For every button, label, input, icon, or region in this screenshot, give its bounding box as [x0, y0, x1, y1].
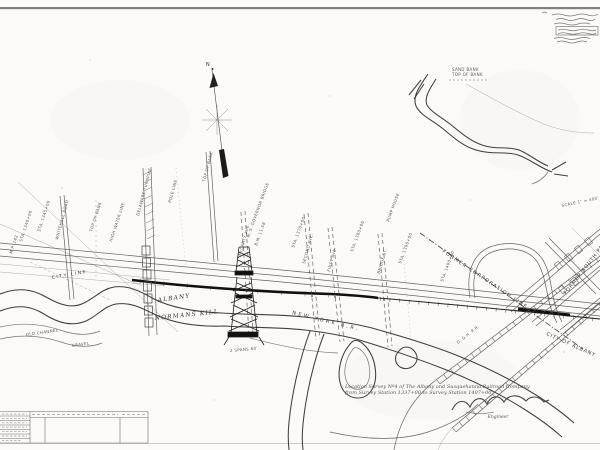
- map-drawing: N SAND BANK TOP OF BANK: [0, 0, 600, 450]
- micro-label: GRAVEL: [71, 341, 90, 348]
- albany-label: ALBANY: [156, 292, 191, 304]
- engineer-title: Engineer: [487, 414, 510, 420]
- survey-map-sheet: N SAND BANK TOP OF BANK: [0, 0, 600, 450]
- micro-label: POLE LINE: [167, 179, 178, 203]
- property-lines: [0, 182, 178, 332]
- paper-texture: [50, 59, 580, 420]
- micro-label: FIRST AVE.: [326, 247, 337, 272]
- micro-label: STA. 1380+00: [349, 220, 365, 253]
- micro-label: D. & H. R.R.: [456, 324, 481, 345]
- micro-label: SECOND AVE.: [301, 233, 314, 264]
- micro-label: BRIDGE ST.: [376, 248, 388, 274]
- railroad-ties: [380, 299, 600, 320]
- railroad-alignment: [0, 243, 600, 320]
- city-of-albany-label: CITY OF ALBANY: [545, 331, 596, 358]
- inset-label-2: TOP OF BANK: [451, 72, 483, 77]
- micro-label: B.M. 11.58: [253, 221, 266, 246]
- micro-label: STA. 1390+00: [397, 232, 413, 265]
- revision-table: [0, 412, 148, 444]
- former-corporation-line-label: FORMER CORPORATION LINE: [441, 249, 529, 311]
- micro-label: STA. 1345+00: [36, 200, 51, 233]
- normans-kill-label: NORMANS KILL: [153, 308, 219, 322]
- micro-label: PUMP HOUSE: [385, 192, 400, 222]
- former-south-pearl-label: FORMER SOUTH PEARL ST.: [563, 224, 600, 296]
- table-text-scribbles: [2, 414, 146, 440]
- micro-label: 2 SPANS 60′: [230, 346, 258, 353]
- micro-label: WHITEHALL ROAD: [54, 199, 69, 240]
- crossing-roads: [60, 151, 412, 350]
- micro-label: STA. 1370+00: [290, 216, 306, 249]
- micro-label: SCALE 1″ = 400′: [561, 195, 599, 208]
- north-label: N: [206, 62, 210, 68]
- river: [0, 287, 574, 450]
- handwritten-notes: [542, 12, 598, 43]
- title-line-2: from Survey Station 1337+00 to Survey St…: [344, 390, 492, 396]
- micro-label: OLD CHANNEL: [25, 327, 59, 337]
- compass-star: [202, 105, 232, 135]
- micro-label: TOP OF BANK: [88, 201, 103, 233]
- micro-label: HIGH WATER LINE: [108, 202, 125, 243]
